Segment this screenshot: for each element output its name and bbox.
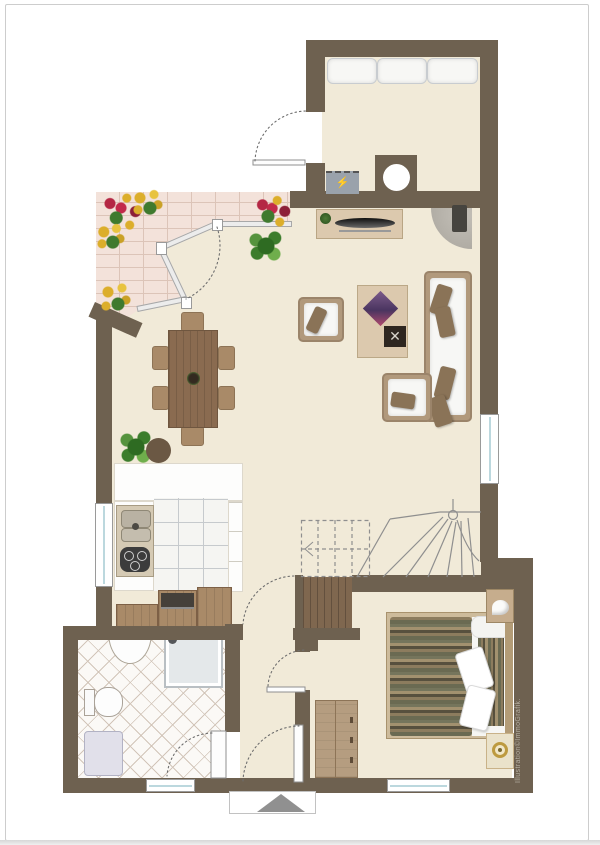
dining-chair: [152, 346, 169, 370]
chimney-flue: [383, 164, 410, 191]
kitchen-cabinet: [116, 604, 158, 628]
flower-bed: [252, 194, 294, 230]
floorplan-page: ⚡ ✕: [0, 0, 600, 845]
sink-bowl-small: [121, 528, 151, 542]
wardrobe: [315, 700, 358, 778]
wall: [295, 575, 303, 628]
burner: [124, 551, 134, 561]
corner-sofa-short: [382, 373, 432, 422]
living-room-window: [480, 414, 499, 484]
wall: [481, 558, 533, 592]
wall: [306, 40, 497, 57]
kitchen-window: [95, 503, 113, 587]
bedside-shelf: [486, 589, 514, 623]
cooktop: [120, 547, 150, 572]
flower-bed: [93, 220, 129, 254]
tv-board: [316, 209, 403, 239]
kitchen-tall-cabinet: [228, 501, 243, 592]
electrical-panel: ⚡: [326, 171, 359, 194]
kitchen-sink-unit: [116, 505, 154, 577]
wall: [63, 626, 240, 640]
faucet: [132, 523, 139, 530]
flower-bed: [96, 278, 136, 318]
bench-cushion: [377, 58, 427, 84]
burner: [130, 561, 140, 571]
wall: [295, 640, 310, 652]
shell-lamp: [492, 600, 509, 615]
bed: [386, 612, 512, 739]
dining-chair: [218, 386, 235, 410]
glazing-post: [212, 219, 223, 231]
wall: [63, 626, 78, 786]
alarm-clock: [492, 742, 508, 758]
entry-arrow: [257, 794, 305, 812]
kitchen-cabinet: [197, 587, 232, 628]
dining-chair: [181, 312, 204, 332]
plant-pot: [320, 213, 331, 224]
headboard: [505, 613, 513, 740]
stool: [146, 438, 171, 463]
chimney-block: [375, 155, 417, 208]
tv: [335, 218, 395, 228]
dining-chair: [152, 386, 169, 410]
tv-stand: [339, 230, 391, 232]
washing-machine: [84, 731, 123, 776]
staircase-lower-steps: [303, 577, 352, 628]
wall: [293, 628, 360, 640]
page-bottom-shadow: [0, 840, 600, 845]
table-bowl: [187, 372, 200, 385]
bathroom-window: [146, 779, 195, 792]
armchair: [298, 297, 344, 342]
wall: [225, 624, 243, 640]
wine-rack: ✕: [384, 326, 406, 347]
coffee-table: ✕: [357, 285, 408, 358]
bench-cushion: [427, 58, 478, 84]
glazing-post: [156, 242, 167, 255]
glazing-post: [181, 297, 192, 309]
bench-cushion: [327, 58, 377, 84]
wall: [306, 57, 325, 112]
decor-bowl: [363, 291, 398, 326]
wall: [96, 314, 112, 508]
dining-table: [168, 330, 218, 428]
flower-bed: [128, 186, 168, 220]
watermark-text: Illustration©ImmoGrafik.: [515, 698, 522, 783]
indoor-plant: [246, 226, 286, 266]
wall: [295, 690, 310, 778]
wall: [96, 584, 112, 628]
burner: [137, 551, 147, 561]
oven: [161, 593, 194, 609]
kitchen-cabinet-oven: [158, 590, 197, 628]
nightstand: [486, 733, 514, 769]
stove-pipe: [452, 205, 467, 232]
dining-chair: [181, 426, 204, 446]
wall: [225, 640, 240, 732]
toilet-bowl: [94, 687, 123, 717]
kitchen-floor-tiles: [154, 498, 228, 591]
bedroom-window: [387, 779, 450, 792]
dining-chair: [218, 346, 235, 370]
